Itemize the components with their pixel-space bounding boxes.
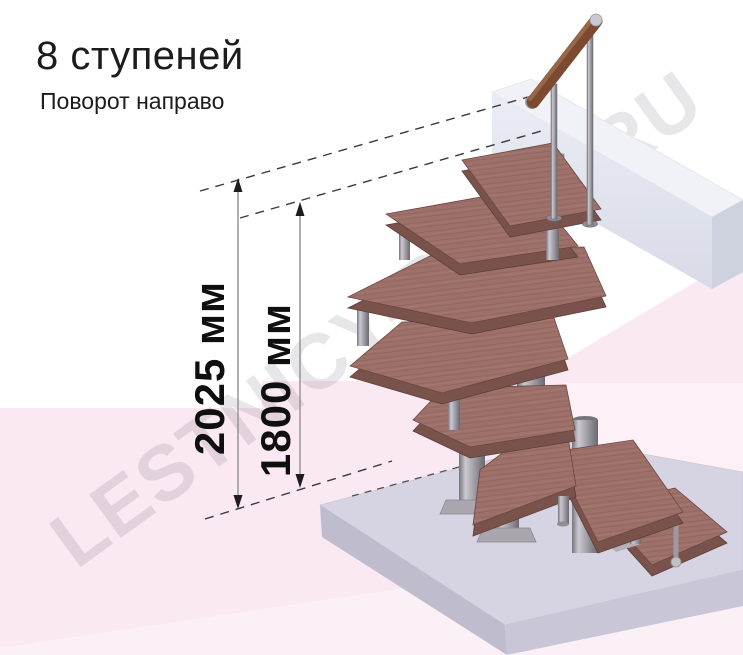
- baluster: [551, 84, 557, 219]
- page-subtitle: Поворот направо: [40, 88, 224, 115]
- tread-spacer: [557, 496, 569, 527]
- diagram-canvas: LESTNICY-PROF.RU: [0, 0, 743, 655]
- dimension-line-total-height: [234, 178, 243, 509]
- dimension-label-total-height: 2025 мм: [186, 281, 234, 455]
- handrail-ferrule: [590, 14, 602, 26]
- handrail-wood: [533, 21, 596, 102]
- baluster: [587, 26, 593, 225]
- arrow-up-icon: [234, 178, 243, 192]
- arrow-down-icon: [234, 495, 243, 509]
- page-title: 8 ступеней: [36, 34, 244, 79]
- dimension-label-flight-height: 1800 мм: [252, 303, 300, 477]
- arrow-up-icon: [296, 202, 305, 216]
